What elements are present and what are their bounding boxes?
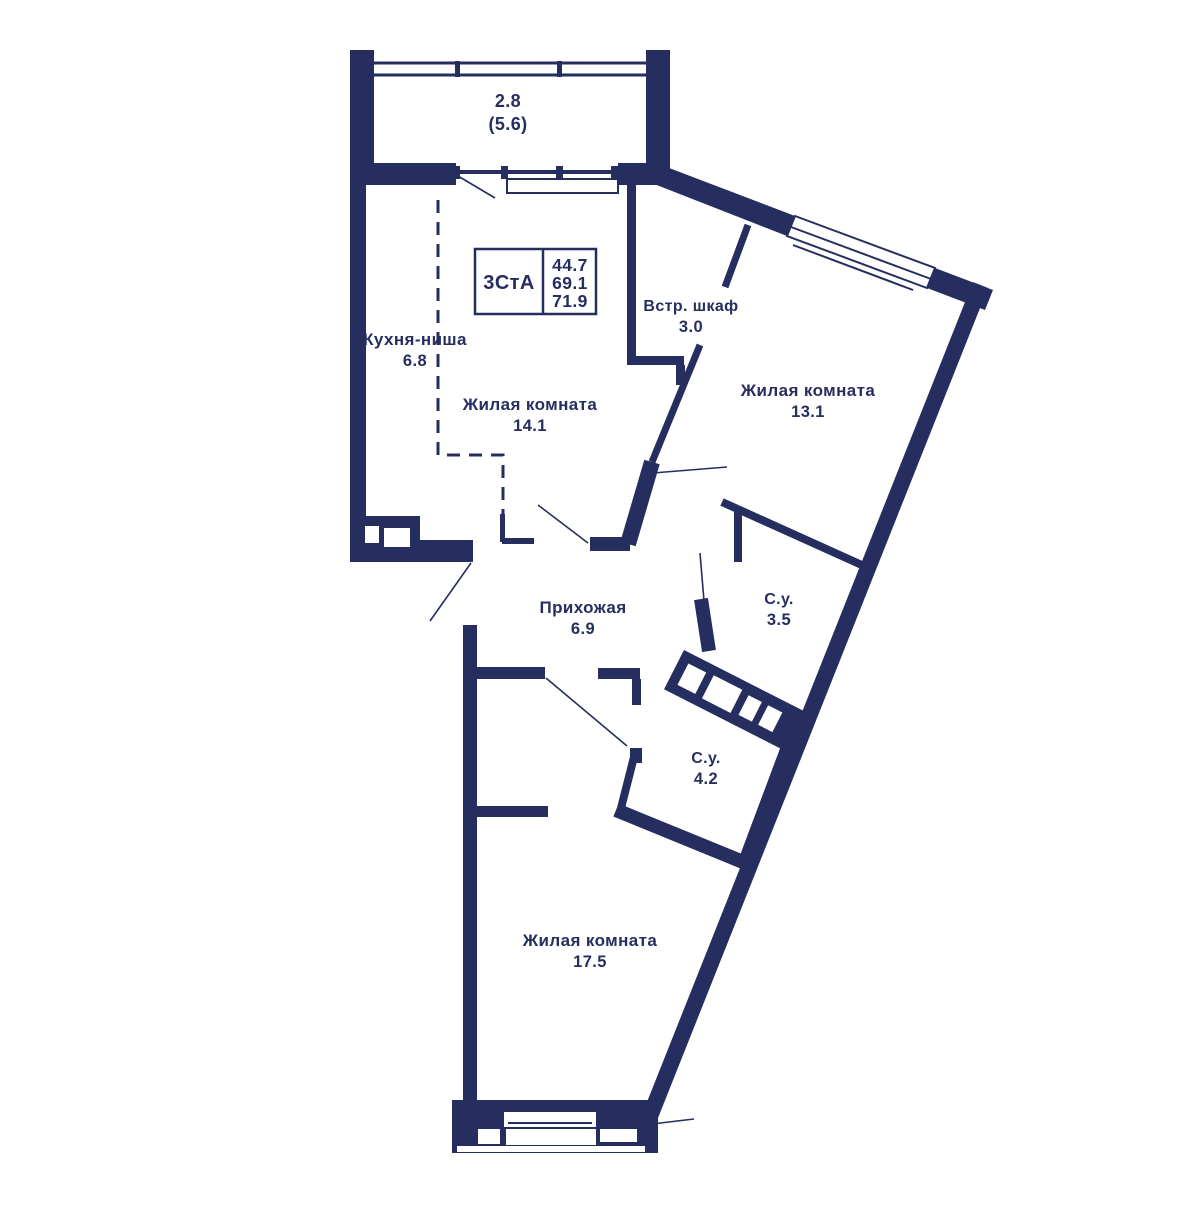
living2-area: 13.1 <box>791 403 825 421</box>
stamp-type: 3СтА <box>483 272 534 294</box>
living3-label: Жилая комната <box>522 931 658 950</box>
balcony-area-label: 2.8 <box>495 91 521 111</box>
bath2-area: 4.2 <box>694 770 718 788</box>
stamp-area-total: 71.9 <box>552 291 588 311</box>
bottom-window-wall <box>452 1100 694 1153</box>
floor-plan-svg: 3СтА 44.7 69.1 71.9 2.8 (5.6) Кухня-ниша… <box>0 0 1200 1200</box>
apartment-stamp: 3СтА 44.7 69.1 71.9 <box>475 249 596 314</box>
stamp-area-living: 44.7 <box>552 255 588 275</box>
living3-area: 17.5 <box>573 953 607 971</box>
floor-plan-page: 3СтА 44.7 69.1 71.9 2.8 (5.6) Кухня-ниша… <box>0 0 1200 1200</box>
shaft-box-small <box>365 526 379 543</box>
living1-area: 14.1 <box>513 417 547 435</box>
hallway-area: 6.9 <box>571 620 595 638</box>
wardrobe-label: Встр. шкаф <box>643 298 738 315</box>
bath1-area: 3.5 <box>767 611 791 629</box>
bath2-label: С.у. <box>691 750 721 767</box>
kitchen-niche-area: 6.8 <box>403 352 427 370</box>
kitchen-niche-label: Кухня-ниша <box>363 330 467 349</box>
wardrobe-area: 3.0 <box>679 318 703 336</box>
living2-label: Жилая комната <box>740 381 876 400</box>
living1-label: Жилая комната <box>462 395 598 414</box>
hallway-label: Прихожая <box>539 598 626 617</box>
balcony-total-label: (5.6) <box>488 114 527 134</box>
shaft-box-large <box>384 528 410 547</box>
stamp-area-usable: 69.1 <box>552 273 588 293</box>
bath1-label: С.у. <box>764 591 794 608</box>
